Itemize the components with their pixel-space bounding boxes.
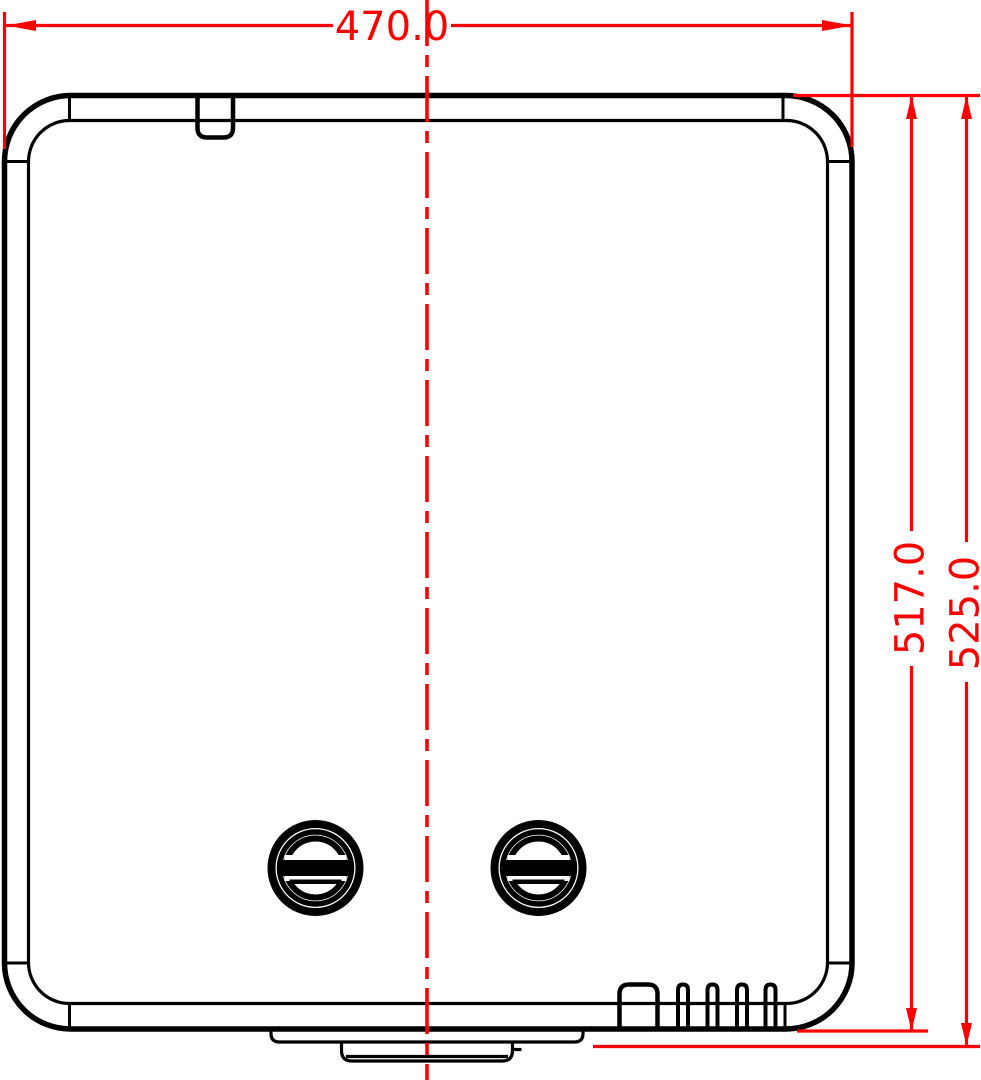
width-dimension-label: 470.0 [335, 4, 450, 50]
screw-right-slot-chord [513, 880, 565, 885]
screw-right-slot-bar [503, 860, 574, 876]
screw-right [495, 824, 583, 912]
dimension-labels: 470.0 517.0 525.0 [335, 4, 981, 670]
drawing-canvas: 470.0 517.0 525.0 [0, 0, 981, 1080]
body-height-dimension-label: 517.0 [887, 541, 933, 656]
vent-slot-4 [766, 985, 776, 1030]
arrow-overall-height-bottom [961, 1023, 972, 1046]
vent-slot-1 [678, 985, 688, 1030]
vent-slots [620, 985, 776, 1030]
screw-left [272, 824, 360, 912]
vent-slot-3 [737, 985, 747, 1030]
overall-height-dimension-label: 525.0 [942, 556, 981, 671]
screw-left-slot-bar [280, 860, 351, 876]
arrow-width-left [6, 20, 36, 31]
arrow-body-height-bottom [906, 1008, 917, 1031]
top-clip-tab [198, 96, 234, 138]
arrow-width-right [822, 20, 852, 31]
vent-slot-2 [708, 985, 718, 1030]
arrow-body-height-top [906, 96, 917, 119]
screw-left-slot-chord [290, 880, 342, 885]
technical-drawing: 470.0 517.0 525.0 [0, 0, 981, 1080]
arrow-overall-height-top [961, 96, 972, 119]
vent-slot-wide [620, 985, 658, 1030]
